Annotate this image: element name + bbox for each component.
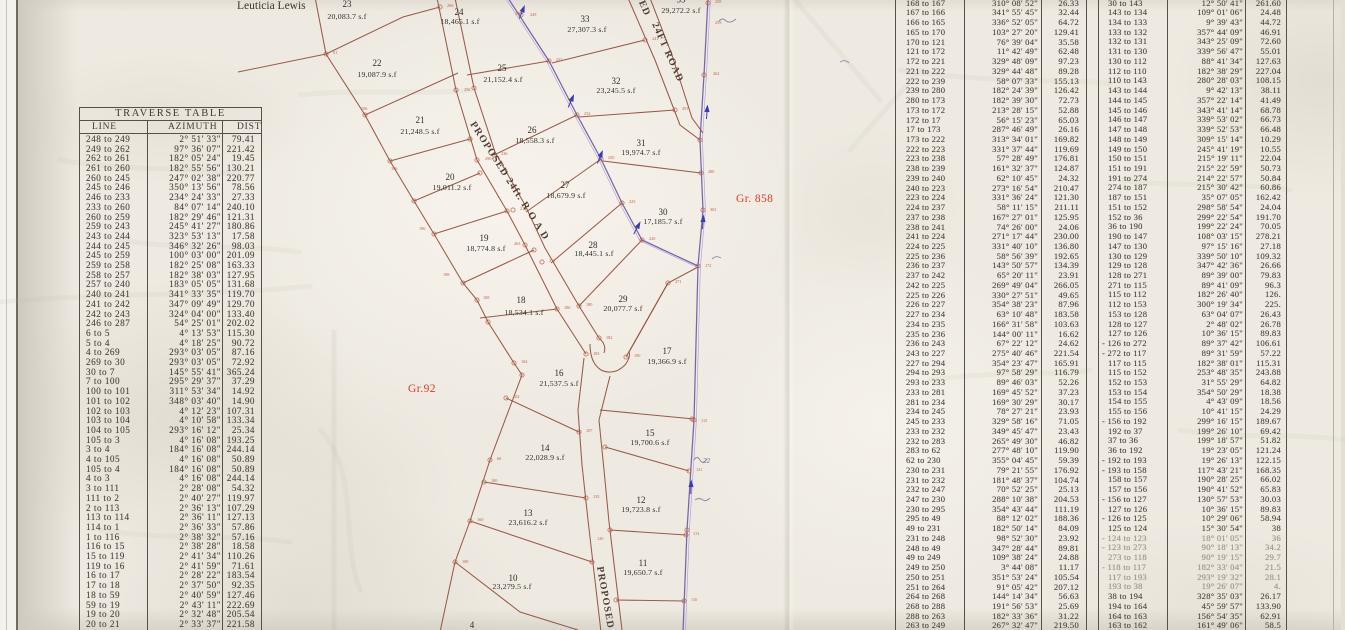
svg-text:19,723.8 s.f: 19,723.8 s.f	[621, 505, 660, 514]
svg-text:102: 102	[513, 394, 519, 399]
svg-text:23,279.5 s.f: 23,279.5 s.f	[492, 582, 531, 591]
svg-text:24FT ROAD: 24FT ROAD	[649, 21, 685, 84]
svg-text:183: 183	[593, 351, 599, 356]
svg-text:172: 172	[705, 263, 711, 268]
svg-text:220: 220	[649, 236, 655, 241]
svg-text:225: 225	[629, 199, 635, 204]
svg-text:18,465.1 s.f: 18,465.1 s.f	[440, 17, 479, 26]
svg-text:4: 4	[470, 620, 475, 630]
svg-text:106: 106	[361, 106, 368, 111]
svg-text:19,974.7 s.f: 19,974.7 s.f	[621, 148, 660, 157]
svg-text:113: 113	[693, 531, 699, 536]
svg-text:33: 33	[581, 14, 591, 24]
svg-text:29: 29	[619, 294, 629, 304]
svg-text:18,558.3 s.f: 18,558.3 s.f	[515, 136, 554, 145]
svg-text:271: 271	[675, 279, 681, 284]
svg-text:180: 180	[586, 302, 592, 307]
svg-text:252: 252	[584, 111, 590, 116]
svg-text:259: 259	[715, 20, 721, 25]
svg-text:115: 115	[701, 418, 707, 423]
svg-text:280: 280	[708, 169, 714, 174]
svg-text:253: 253	[556, 57, 562, 62]
svg-text:256: 256	[464, 87, 471, 92]
svg-text:20,077.7 s.f: 20,077.7 s.f	[603, 304, 642, 313]
svg-text:218: 218	[549, 258, 555, 263]
svg-text:18,534.1 s.f: 18,534.1 s.f	[504, 308, 543, 317]
svg-text:19,087.9 s.f: 19,087.9 s.f	[357, 70, 396, 79]
svg-text:26: 26	[528, 125, 538, 135]
svg-text:13: 13	[524, 508, 534, 518]
svg-text:24: 24	[455, 7, 465, 17]
svg-text:110: 110	[691, 597, 697, 602]
svg-text:120: 120	[597, 536, 603, 541]
svg-text:23,616.2 s.f: 23,616.2 s.f	[508, 518, 547, 527]
svg-text:20: 20	[446, 172, 456, 182]
svg-text:17: 17	[663, 346, 673, 356]
svg-text:18,679.9 s.f: 18,679.9 s.f	[546, 191, 585, 200]
svg-text:263: 263	[514, 241, 520, 246]
svg-text:198: 198	[443, 272, 449, 277]
svg-text:182: 182	[606, 335, 612, 340]
svg-text:18,774.8 s.f: 18,774.8 s.f	[466, 244, 505, 253]
svg-text:22: 22	[703, 457, 711, 465]
svg-text:Gr.92: Gr.92	[408, 383, 436, 395]
svg-text:249: 249	[530, 12, 536, 17]
svg-text:35: 35	[677, 0, 687, 5]
svg-text:258: 258	[715, 0, 721, 4]
svg-text:20,083.7 s.f: 20,083.7 s.f	[327, 12, 366, 21]
svg-text:18,445.1 s.f: 18,445.1 s.f	[574, 249, 613, 258]
svg-text:206: 206	[447, 3, 454, 8]
svg-text:23: 23	[343, 0, 353, 9]
svg-text:104: 104	[521, 359, 528, 364]
svg-text:27: 27	[561, 180, 571, 190]
svg-text:291: 291	[682, 106, 688, 111]
svg-text:166: 166	[391, 166, 398, 171]
svg-text:262: 262	[713, 71, 719, 76]
svg-text:107: 107	[586, 428, 593, 433]
svg-text:100: 100	[491, 478, 497, 483]
svg-text:23,245.5 s.f: 23,245.5 s.f	[596, 86, 635, 95]
svg-text:19: 19	[480, 233, 490, 243]
svg-text:108: 108	[483, 295, 489, 300]
svg-text:22,028.9 s.f: 22,028.9 s.f	[525, 453, 564, 462]
svg-text:186: 186	[564, 305, 571, 310]
svg-text:31: 31	[637, 138, 646, 148]
svg-text:21,537.5 s.f: 21,537.5 s.f	[539, 379, 578, 388]
svg-text:302: 302	[710, 207, 716, 212]
svg-text:19,700.6 s.f: 19,700.6 s.f	[630, 438, 669, 447]
svg-text:61: 61	[333, 50, 337, 55]
svg-text:25: 25	[498, 63, 508, 73]
svg-text:17,185.7 s.f: 17,185.7 s.f	[643, 217, 682, 226]
svg-text:160: 160	[477, 517, 483, 522]
svg-text:250: 250	[608, 155, 614, 160]
svg-text:108: 108	[462, 559, 468, 564]
svg-text:22: 22	[373, 58, 382, 68]
svg-text:236: 236	[501, 151, 508, 156]
svg-text:19,650.7 s.f: 19,650.7 s.f	[623, 568, 662, 577]
svg-text:60: 60	[497, 456, 501, 461]
svg-text:27,307.3 s.f: 27,307.3 s.f	[567, 25, 606, 34]
svg-text:Gr. 858: Gr. 858	[736, 193, 773, 205]
svg-text:30: 30	[659, 207, 669, 217]
svg-text:190: 190	[634, 353, 640, 358]
svg-text:121: 121	[696, 467, 702, 472]
svg-text:21,248.5 s.f: 21,248.5 s.f	[400, 127, 439, 136]
svg-text:135: 135	[593, 494, 599, 499]
svg-text:21,152.4 s.f: 21,152.4 s.f	[483, 75, 522, 84]
svg-text:SED: SED	[633, 0, 652, 18]
svg-text:19,366.9 s.f: 19,366.9 s.f	[647, 357, 686, 366]
svg-text:196: 196	[419, 226, 426, 231]
svg-text:29,272.2 s.f: 29,272.2 s.f	[661, 6, 700, 15]
svg-text:16: 16	[555, 368, 565, 378]
svg-text:15: 15	[646, 428, 656, 438]
svg-text:Leuticia Lewis: Leuticia Lewis	[237, 0, 306, 12]
svg-text:11: 11	[639, 558, 648, 568]
svg-text:21: 21	[416, 115, 425, 125]
svg-text:32: 32	[612, 76, 621, 86]
svg-text:18: 18	[517, 295, 527, 305]
svg-text:19,011.2 s.f: 19,011.2 s.f	[433, 183, 472, 192]
svg-text:12: 12	[637, 495, 646, 505]
svg-text:14: 14	[541, 443, 551, 453]
